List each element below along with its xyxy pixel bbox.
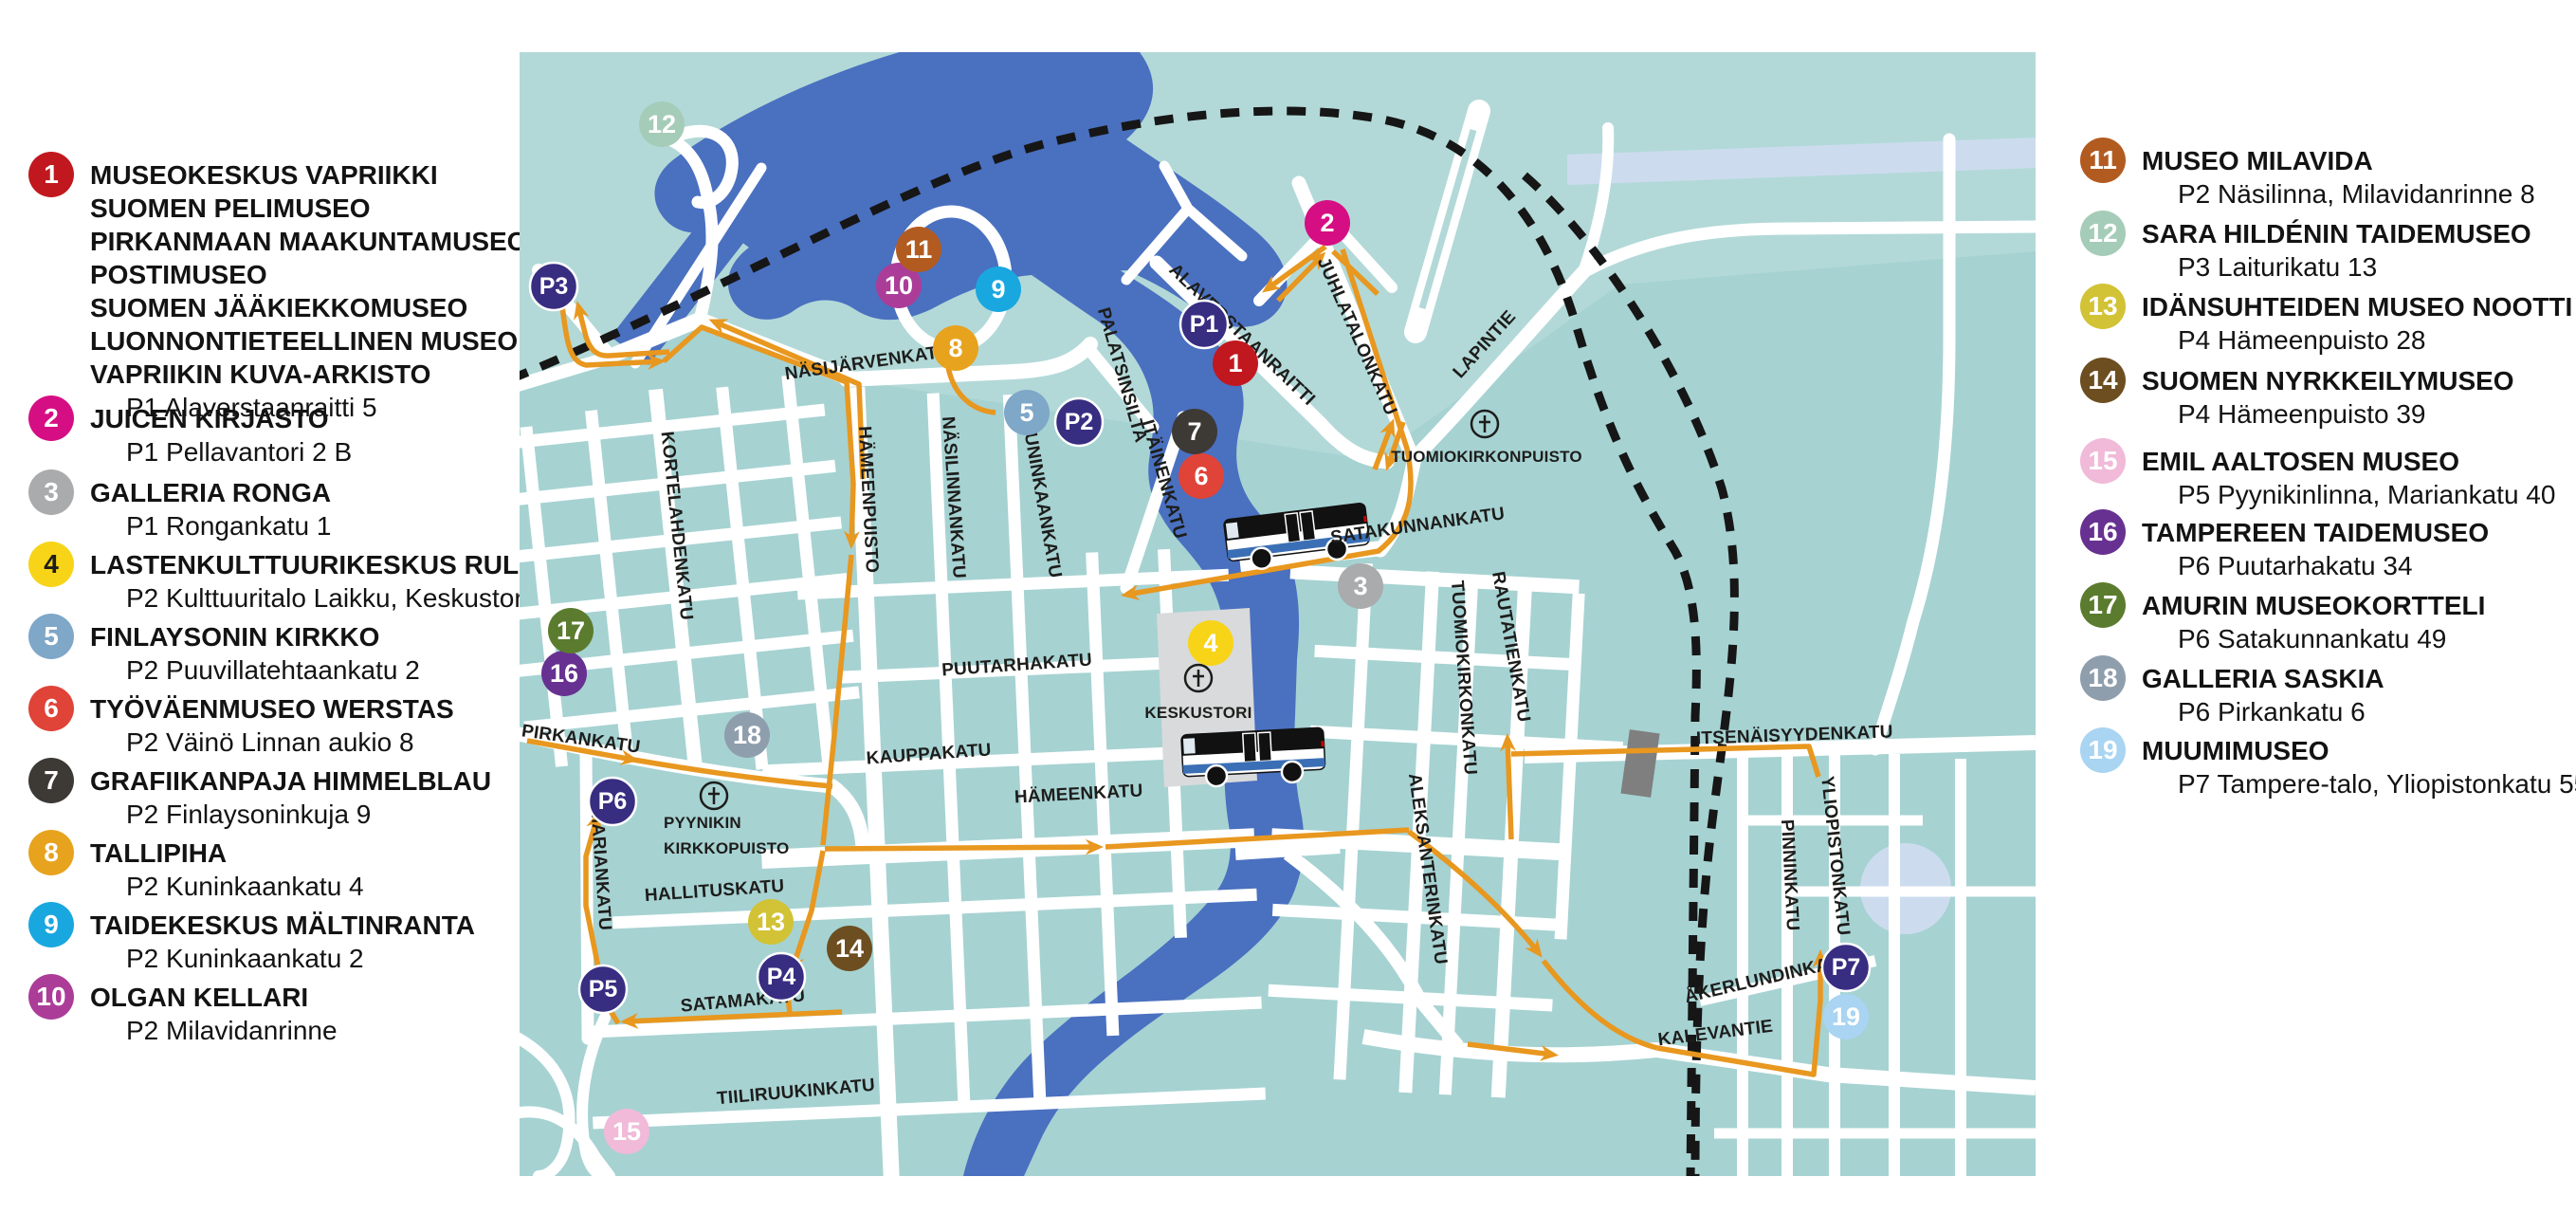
area-label-keskustori: KESKUSTORI — [1144, 704, 1251, 722]
legend-badge-13: 13 — [2080, 284, 2126, 329]
parking-stop-p5: P5 — [579, 965, 627, 1013]
legend-address: P4 Hämeenpuisto 39 — [2142, 397, 2514, 431]
map-marker-number: 2 — [1320, 209, 1334, 237]
legend-badge-19: 19 — [2080, 727, 2126, 773]
map-marker-17: 17 — [548, 608, 594, 653]
legend-text-1: MUSEOKESKUS VAPRIIKKISUOMEN PELIMUSEOPIR… — [90, 152, 527, 424]
legend-item-4: 4LASTENKULTTUURIKESKUS RULLAP2 Kulttuuri… — [28, 542, 554, 615]
legend-badge-10: 10 — [28, 974, 74, 1020]
map-marker-9: 9 — [976, 267, 1021, 312]
parking-stop-p2: P2 — [1055, 398, 1103, 446]
legend-address: P2 Kuninkaankatu 4 — [90, 870, 364, 903]
legend-text-13: IDÄNSUHTEIDEN MUSEO NOOTTIP4 Hämeenpuist… — [2142, 284, 2572, 357]
legend-title-line: MUUMIMUSEO — [2142, 734, 2576, 767]
legend-item-3: 3GALLERIA RONGAP1 Rongankatu 1 — [28, 469, 331, 542]
legend-address: P2 Näsilinna, Milavidanrinne 8 — [2142, 177, 2535, 211]
legend-badge-1: 1 — [28, 152, 74, 197]
map-marker-number: 6 — [1194, 462, 1208, 490]
map-marker-19: 19 — [1823, 994, 1869, 1039]
legend-address: P2 Finlaysoninkuja 9 — [90, 798, 491, 831]
area-label-tuomiokirkonpuisto: TUOMIOKIRKONPUISTO — [1391, 448, 1582, 466]
legend-badge-6: 6 — [28, 686, 74, 731]
legend-address: P4 Hämeenpuisto 28 — [2142, 323, 2572, 357]
map-marker-number: 16 — [550, 659, 578, 688]
legend-item-8: 8TALLIPIHAP2 Kuninkaankatu 4 — [28, 830, 364, 903]
legend-title-line: SUOMEN NYRKKEILYMUSEO — [2142, 364, 2514, 397]
legend-address: P5 Pyynikinlinna, Mariankatu 40 — [2142, 478, 2555, 511]
map-marker-number: 12 — [648, 110, 676, 138]
legend-badge-5: 5 — [28, 614, 74, 659]
legend-address: P2 Puuvillatehtaankatu 2 — [90, 653, 420, 687]
legend-item-19: 19MUUMIMUSEOP7 Tampere-talo, Yliopistonk… — [2080, 727, 2576, 800]
legend-item-14: 14SUOMEN NYRKKEILYMUSEOP4 Hämeenpuisto 3… — [2080, 358, 2514, 431]
legend-badge-8: 8 — [28, 830, 74, 875]
legend-item-5: 5FINLAYSONIN KIRKKOP2 Puuvillatehtaankat… — [28, 614, 420, 687]
map-marker-4: 4 — [1188, 620, 1233, 666]
legend-title-line: POSTIMUSEO — [90, 258, 527, 291]
map-marker-8: 8 — [933, 325, 978, 371]
map-marker-number: 13 — [757, 908, 785, 936]
legend-item-16: 16TAMPEREEN TAIDEMUSEOP6 Puutarhakatu 34 — [2080, 509, 2489, 582]
legend-text-12: SARA HILDÉNIN TAIDEMUSEOP3 Laiturikatu 1… — [2142, 211, 2531, 284]
legend-title-line: LUONNONTIETEELLINEN MUSEO — [90, 324, 527, 358]
parking-stop-p6: P6 — [589, 778, 636, 825]
legend-badge-17: 17 — [2080, 582, 2126, 628]
map-marker-number: 7 — [1187, 417, 1201, 446]
legend-text-16: TAMPEREEN TAIDEMUSEOP6 Puutarhakatu 34 — [2142, 509, 2489, 582]
legend-item-7: 7GRAFIIKANPAJA HIMMELBLAUP2 Finlaysonink… — [28, 758, 491, 831]
legend-address: P6 Puutarhakatu 34 — [2142, 549, 2489, 582]
legend-text-5: FINLAYSONIN KIRKKOP2 Puuvillatehtaankatu… — [90, 614, 420, 687]
legend-title-line: LASTENKULTTUURIKESKUS RULLA — [90, 548, 554, 581]
legend-badge-15: 15 — [2080, 438, 2126, 484]
stop-label: P5 — [589, 976, 618, 1002]
legend-text-18: GALLERIA SASKIAP6 Pirkankatu 6 — [2142, 655, 2384, 728]
map-marker-number: 18 — [733, 721, 761, 749]
legend-text-15: EMIL AALTOSEN MUSEOP5 Pyynikinlinna, Mar… — [2142, 438, 2555, 511]
legend-text-17: AMURIN MUSEOKORTTELIP6 Satakunnankatu 49 — [2142, 582, 2485, 655]
legend-badge-3: 3 — [28, 469, 74, 515]
parking-stop-p7: P7 — [1822, 944, 1870, 991]
map-marker-16: 16 — [541, 651, 587, 696]
legend-address: P6 Satakunnankatu 49 — [2142, 622, 2485, 655]
stop-label: P1 — [1190, 311, 1219, 338]
map-canvas: NÄSIJÄRVENKATUKORTELAHDENKATUHÄMEENPUIST… — [520, 52, 2036, 1176]
legend-title-line: SARA HILDÉNIN TAIDEMUSEO — [2142, 217, 2531, 250]
legend-title-line: MUSEOKESKUS VAPRIIKKI — [90, 158, 527, 192]
legend-title-line: TALLIPIHA — [90, 837, 364, 870]
legend-address: P6 Pirkankatu 6 — [2142, 695, 2384, 728]
legend-badge-11: 11 — [2080, 138, 2126, 183]
map-marker-11: 11 — [896, 227, 941, 272]
legend-item-1: 1MUSEOKESKUS VAPRIIKKISUOMEN PELIMUSEOPI… — [28, 152, 527, 424]
legend-address: P2 Milavidanrinne — [90, 1014, 338, 1047]
legend-title-line: SUOMEN PELIMUSEO — [90, 192, 527, 225]
legend-item-12: 12SARA HILDÉNIN TAIDEMUSEOP3 Laiturikatu… — [2080, 211, 2531, 284]
city-map: NÄSIJÄRVENKATUKORTELAHDENKATUHÄMEENPUIST… — [520, 52, 2036, 1176]
legend-item-9: 9TAIDEKESKUS MÄLTINRANTAP2 Kuninkaankatu… — [28, 902, 475, 975]
map-marker-18: 18 — [724, 712, 770, 758]
legend-badge-16: 16 — [2080, 509, 2126, 555]
legend-item-10: 10OLGAN KELLARIP2 Milavidanrinne — [28, 974, 338, 1047]
legend-badge-14: 14 — [2080, 358, 2126, 403]
legend-address: P2 Väinö Linnan aukio 8 — [90, 726, 454, 759]
legend-item-13: 13IDÄNSUHTEIDEN MUSEO NOOTTIP4 Hämeenpui… — [2080, 284, 2572, 357]
map-marker-12: 12 — [639, 101, 685, 147]
stop-label: P7 — [1832, 954, 1861, 981]
map-marker-number: 5 — [1019, 398, 1033, 427]
legend-address: P1 Rongankatu 1 — [90, 509, 331, 542]
legend-title-line: FINLAYSONIN KIRKKO — [90, 620, 420, 653]
legend-text-3: GALLERIA RONGAP1 Rongankatu 1 — [90, 469, 331, 542]
map-marker-7: 7 — [1172, 409, 1217, 454]
legend-address: P1 Pellavantori 2 B — [90, 435, 352, 469]
map-marker-number: 3 — [1353, 572, 1367, 600]
legend-item-2: 2JUICEN KIRJASTOP1 Pellavantori 2 B — [28, 395, 352, 469]
legend-item-15: 15EMIL AALTOSEN MUSEOP5 Pyynikinlinna, M… — [2080, 438, 2555, 511]
map-marker-5: 5 — [1004, 390, 1050, 435]
legend-title-line: AMURIN MUSEOKORTTELI — [2142, 589, 2485, 622]
parking-stop-p4: P4 — [758, 953, 805, 1001]
legend-text-14: SUOMEN NYRKKEILYMUSEOP4 Hämeenpuisto 39 — [2142, 358, 2514, 431]
map-marker-2: 2 — [1305, 200, 1350, 246]
legend-title-line: SUOMEN JÄÄKIEKKOMUSEO — [90, 291, 527, 324]
legend-title-line: JUICEN KIRJASTO — [90, 402, 352, 435]
parking-stop-p3: P3 — [530, 263, 577, 310]
legend-item-11: 11MUSEO MILAVIDAP2 Näsilinna, Milavidanr… — [2080, 138, 2535, 211]
legend-title-line: VAPRIIKIN KUVA-ARKISTO — [90, 358, 527, 391]
map-marker-3: 3 — [1338, 563, 1383, 609]
legend-text-9: TAIDEKESKUS MÄLTINRANTAP2 Kuninkaankatu … — [90, 902, 475, 975]
legend-badge-9: 9 — [28, 902, 74, 947]
map-marker-number: 17 — [557, 616, 585, 645]
stop-label: P4 — [767, 964, 796, 990]
legend-text-4: LASTENKULTTUURIKESKUS RULLAP2 Kulttuurit… — [90, 542, 554, 615]
legend-text-19: MUUMIMUSEOP7 Tampere-talo, Yliopistonkat… — [2142, 727, 2576, 800]
legend-title-line: MUSEO MILAVIDA — [2142, 144, 2535, 177]
map-marker-number: 15 — [612, 1117, 641, 1146]
legend-item-17: 17AMURIN MUSEOKORTTELIP6 Satakunnankatu … — [2080, 582, 2485, 655]
legend-title-line: GRAFIIKANPAJA HIMMELBLAU — [90, 764, 491, 798]
map-marker-number: 8 — [948, 334, 962, 362]
map-marker-number: 10 — [885, 271, 913, 300]
legend-title-line: GALLERIA SASKIA — [2142, 662, 2384, 695]
museum-map-poster: { "colors":{ "land":"#a6d2d2","land_nort… — [0, 0, 2576, 1232]
legend-address: P7 Tampere-talo, Yliopistonkatu 55 — [2142, 767, 2576, 800]
legend-title-line: IDÄNSUHTEIDEN MUSEO NOOTTI — [2142, 290, 2572, 323]
map-marker-number: 11 — [905, 235, 933, 264]
legend-badge-7: 7 — [28, 758, 74, 803]
area-label-kirkkopuisto: KIRKKOPUISTO — [664, 839, 789, 857]
map-marker-number: 9 — [991, 275, 1005, 303]
legend-title-line: EMIL AALTOSEN MUSEO — [2142, 445, 2555, 478]
legend-text-7: GRAFIIKANPAJA HIMMELBLAUP2 Finlaysoninku… — [90, 758, 491, 831]
legend-address: P3 Laiturikatu 13 — [2142, 250, 2531, 284]
map-marker-number: 14 — [835, 934, 864, 963]
legend-title-line: OLGAN KELLARI — [90, 981, 338, 1014]
legend-item-18: 18GALLERIA SASKIAP6 Pirkankatu 6 — [2080, 655, 2384, 728]
legend-address: P2 Kulttuuritalo Laikku, Keskustori 4 — [90, 581, 554, 615]
map-marker-6: 6 — [1178, 453, 1224, 499]
map-marker-number: 19 — [1832, 1002, 1860, 1031]
legend-text-8: TALLIPIHAP2 Kuninkaankatu 4 — [90, 830, 364, 903]
area-label-pyynikin: PYYNIKIN — [664, 814, 741, 832]
map-marker-14: 14 — [827, 926, 872, 971]
map-marker-number: 4 — [1203, 629, 1217, 657]
parking-stop-p1: P1 — [1180, 301, 1228, 348]
legend-item-6: 6TYÖVÄENMUSEO WERSTASP2 Väinö Linnan auk… — [28, 686, 454, 759]
map-marker-1: 1 — [1213, 340, 1258, 386]
legend-title-line: GALLERIA RONGA — [90, 476, 331, 509]
legend-badge-2: 2 — [28, 395, 74, 441]
legend-text-11: MUSEO MILAVIDAP2 Näsilinna, Milavidanrin… — [2142, 138, 2535, 211]
map-marker-13: 13 — [748, 899, 794, 945]
legend-badge-12: 12 — [2080, 211, 2126, 256]
legend-title-line: TYÖVÄENMUSEO WERSTAS — [90, 692, 454, 726]
stop-label: P2 — [1065, 409, 1094, 435]
map-marker-number: 1 — [1228, 349, 1242, 377]
stop-label: P3 — [539, 273, 569, 300]
legend-badge-4: 4 — [28, 542, 74, 587]
legend-title-line: TAMPEREEN TAIDEMUSEO — [2142, 516, 2489, 549]
legend-address: P2 Kuninkaankatu 2 — [90, 942, 475, 975]
legend-badge-18: 18 — [2080, 655, 2126, 701]
legend-title-line: PIRKANMAAN MAAKUNTAMUSEO — [90, 225, 527, 258]
stop-label: P6 — [598, 788, 628, 815]
legend-title-line: TAIDEKESKUS MÄLTINRANTA — [90, 909, 475, 942]
legend-text-6: TYÖVÄENMUSEO WERSTASP2 Väinö Linnan auki… — [90, 686, 454, 759]
legend-text-2: JUICEN KIRJASTOP1 Pellavantori 2 B — [90, 395, 352, 469]
map-marker-15: 15 — [604, 1109, 649, 1154]
legend-text-10: OLGAN KELLARIP2 Milavidanrinne — [90, 974, 338, 1047]
